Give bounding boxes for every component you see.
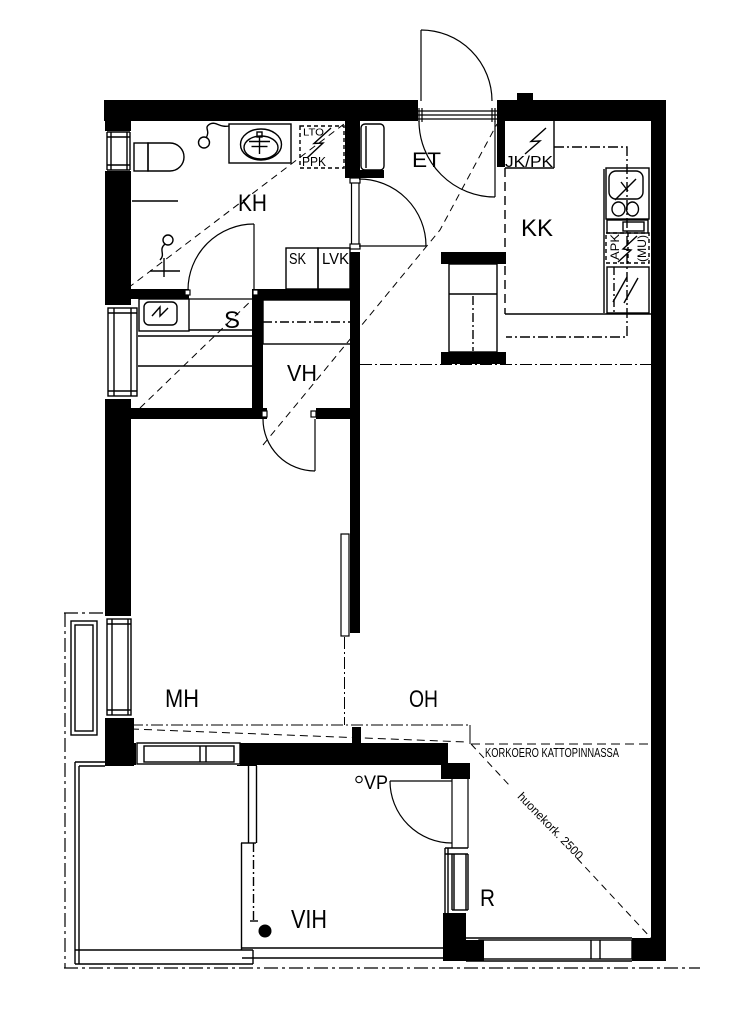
svg-text:VP: VP bbox=[364, 773, 388, 794]
svg-text:APK: APK bbox=[608, 234, 622, 260]
svg-text:(MU): (MU) bbox=[635, 235, 649, 262]
svg-text:VH: VH bbox=[287, 360, 317, 386]
svg-text:LTO: LTO bbox=[303, 127, 324, 139]
svg-text:VIH: VIH bbox=[291, 904, 327, 934]
svg-text:JK/PK: JK/PK bbox=[505, 154, 553, 171]
svg-text:KH: KH bbox=[238, 190, 267, 217]
svg-text:SK: SK bbox=[289, 251, 306, 268]
svg-text:KORKOERO KATTOPINNASSA: KORKOERO KATTOPINNASSA bbox=[485, 746, 619, 760]
svg-text:PPK: PPK bbox=[302, 155, 327, 169]
svg-text:KK: KK bbox=[521, 215, 553, 242]
svg-text:R: R bbox=[480, 885, 495, 912]
svg-text:ET: ET bbox=[412, 149, 441, 172]
svg-text:LVK: LVK bbox=[322, 251, 349, 268]
svg-text:S: S bbox=[224, 307, 240, 334]
svg-text:MH: MH bbox=[165, 685, 199, 713]
svg-text:OH: OH bbox=[409, 686, 438, 713]
